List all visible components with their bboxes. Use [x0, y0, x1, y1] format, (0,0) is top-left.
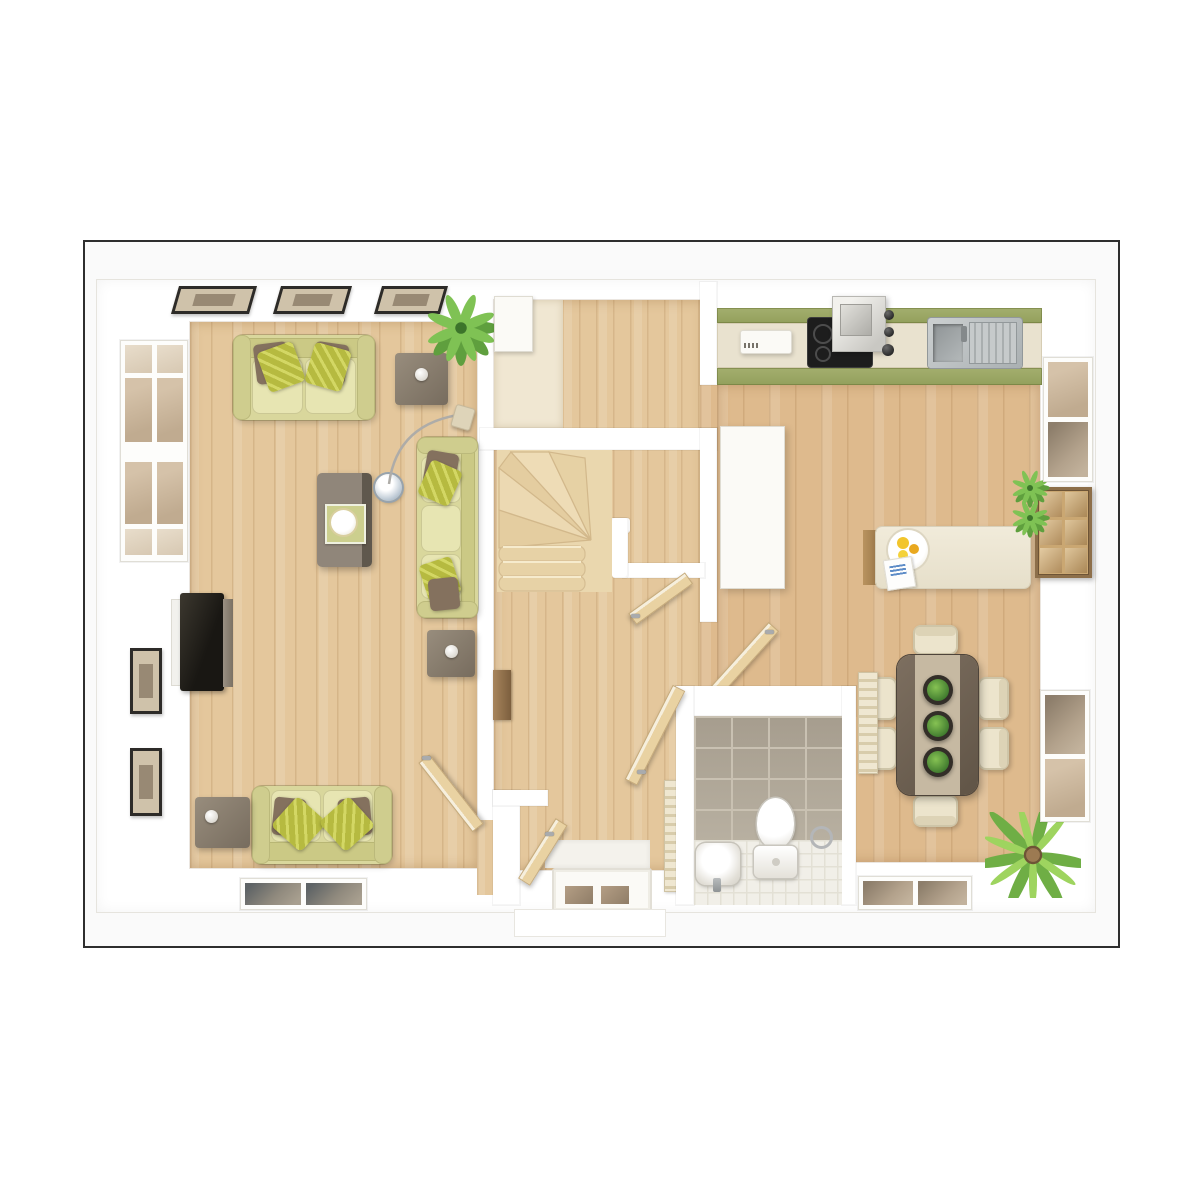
- base-cabinet-band: [717, 368, 1042, 385]
- right-window-top: [1043, 357, 1093, 482]
- picture-top-1: [171, 286, 257, 314]
- tv-shelf: [223, 599, 233, 687]
- window-pane: [125, 529, 152, 555]
- sofa-arm: [374, 786, 392, 864]
- chair-back: [915, 627, 956, 636]
- living-door-threshold: [477, 820, 494, 895]
- picture-art-icon: [293, 294, 333, 306]
- appliance-vent-icon: [744, 343, 758, 348]
- sofa-back: [256, 842, 388, 861]
- window-pane: [1045, 695, 1085, 754]
- window-pane: [918, 881, 968, 905]
- door-handle-icon: [422, 756, 431, 760]
- table-planter: [923, 747, 953, 777]
- window-pane: [306, 883, 362, 905]
- dining-chair: [978, 727, 1009, 770]
- window-pane: [863, 881, 913, 905]
- fruit-icon: [897, 537, 909, 549]
- wc-wall-left: [676, 686, 694, 905]
- side-table-3: [195, 797, 250, 848]
- window-pane: [1045, 759, 1085, 818]
- front-door-mat: [545, 840, 650, 868]
- dining-chair: [913, 795, 958, 827]
- handrail-vertical: [612, 518, 628, 578]
- shelf-cell: [1065, 520, 1087, 545]
- window-transom: [157, 447, 184, 457]
- window-transom: [125, 447, 152, 457]
- picture-art-icon: [192, 294, 236, 306]
- fruit-icon: [909, 544, 919, 554]
- living-bottom-window: [240, 878, 367, 910]
- wall-console: [493, 670, 511, 720]
- window-pane: [125, 345, 152, 373]
- chair-back: [999, 729, 1007, 768]
- wc-wall-right: [842, 686, 856, 905]
- shelf-cell: [1065, 548, 1087, 573]
- front-door-glass: [565, 886, 593, 904]
- door-handle-icon: [545, 832, 554, 836]
- table-planter: [923, 711, 953, 741]
- corner-plant: [423, 290, 499, 366]
- stairs-lobby-wall: [623, 563, 705, 578]
- window-pane: [157, 462, 184, 524]
- wall-entry-stairs: [480, 428, 717, 450]
- vase-icon: [205, 810, 218, 823]
- tall-left-window: [120, 340, 188, 562]
- picture-art-icon: [139, 664, 154, 698]
- hob-burner-icon: [815, 346, 831, 362]
- porch-ledge: [493, 790, 548, 806]
- planter-plant-icon: [927, 751, 949, 773]
- picture-art-icon: [139, 765, 154, 800]
- sofa-arm: [357, 335, 375, 420]
- plate-icon: [331, 510, 356, 535]
- window-pane: [157, 378, 184, 442]
- door-handle-icon: [637, 770, 646, 774]
- sink-bowl: [933, 324, 963, 362]
- countertop-appliance: [740, 330, 792, 354]
- front-door-glass: [601, 886, 629, 904]
- chair-back: [999, 679, 1007, 718]
- tv-panel: [180, 593, 224, 691]
- vase-icon: [445, 645, 458, 658]
- window-pane: [157, 529, 184, 555]
- vase-icon: [415, 368, 428, 381]
- hob-burner-icon: [813, 324, 833, 344]
- hob-knob-icon: [884, 327, 894, 337]
- sofa-arm: [233, 335, 251, 420]
- basin-tap-icon: [713, 878, 721, 892]
- shelf-cell: [1065, 492, 1087, 517]
- sofa-seat: [421, 505, 461, 552]
- sink-tap-icon: [961, 326, 967, 342]
- window-pane: [245, 883, 301, 905]
- hob-knob-icon: [882, 344, 894, 356]
- dining-radiator: [858, 672, 878, 774]
- floorplan-image: [0, 0, 1200, 1200]
- plan-frame: [83, 240, 1120, 948]
- toilet-lid: [757, 798, 794, 848]
- toilet-flush-button-icon: [772, 858, 780, 866]
- potted-plant: [1010, 498, 1050, 538]
- palm-plant: [985, 812, 1081, 898]
- sofa-arm: [252, 786, 270, 864]
- window-pane: [125, 462, 152, 524]
- wall-hall-kitchen-mid: [700, 428, 717, 622]
- porch-protrusion: [515, 910, 665, 936]
- dining-chair: [913, 625, 958, 655]
- chair-back: [915, 816, 956, 825]
- towel-ring-icon: [810, 826, 833, 849]
- table-planter: [923, 675, 953, 705]
- door-handle-icon: [631, 614, 640, 618]
- winder-staircase: [497, 450, 612, 592]
- planter-plant-icon: [927, 715, 949, 737]
- shelf-cell: [1040, 548, 1062, 573]
- window-pane: [125, 378, 152, 442]
- picture-left-1: [130, 648, 162, 714]
- planter-plant-icon: [927, 679, 949, 701]
- picture-left-2: [130, 748, 162, 816]
- window-pane: [157, 345, 184, 373]
- door-handle-icon: [765, 630, 774, 634]
- wall-hall-kitchen-top: [700, 282, 717, 385]
- hob-knob-icon: [884, 310, 894, 320]
- hood-vent-icon: [840, 304, 872, 336]
- entry-kitchen-opening: [700, 385, 717, 428]
- tall-cupboard: [720, 426, 785, 589]
- right-window-bottom: [1040, 690, 1090, 822]
- picture-top-2: [273, 286, 352, 314]
- cushion: [427, 577, 460, 612]
- entry-cupboard: [494, 296, 533, 352]
- window-pane: [1048, 422, 1088, 477]
- dining-chair: [978, 677, 1009, 720]
- sink-drainer: [969, 322, 1017, 364]
- window-pane: [1048, 362, 1088, 417]
- porch-wall-stub: [493, 790, 520, 905]
- wc-wall-top: [676, 686, 856, 716]
- dining-bottom-window: [858, 876, 972, 910]
